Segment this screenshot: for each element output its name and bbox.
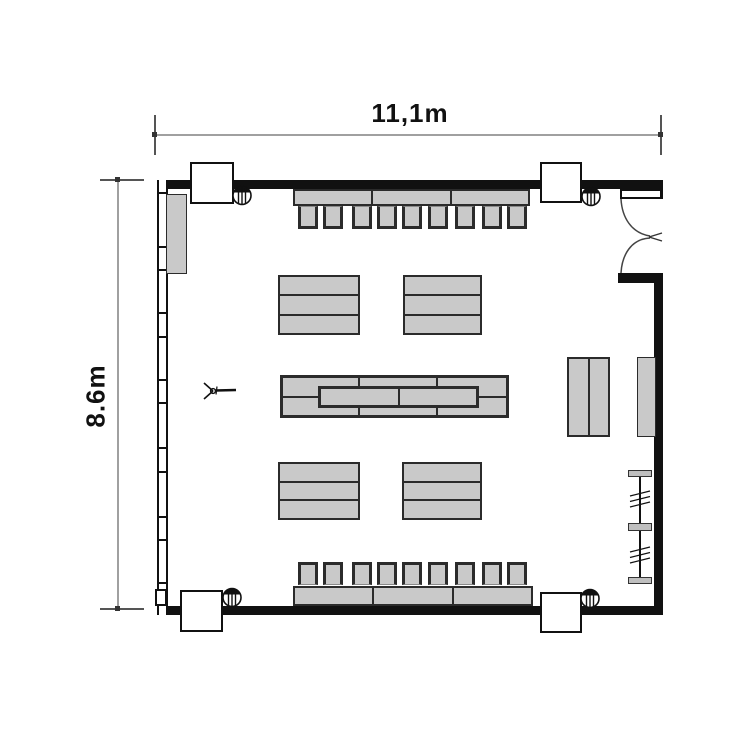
chair [402, 562, 422, 585]
window-mullion [159, 246, 166, 248]
chair [455, 562, 475, 585]
table [279, 500, 359, 519]
column-bottom-left [180, 590, 223, 632]
chair [402, 206, 422, 229]
table-group-upper-right [403, 275, 482, 335]
window-wall-end-cap [155, 589, 167, 606]
chair [352, 562, 372, 585]
dimension-dot-left-bottom [115, 606, 120, 611]
window-mullion [159, 192, 166, 194]
window-mullion [159, 516, 166, 518]
wall-right-below-door [654, 273, 663, 615]
cabinet-right-wall [637, 357, 656, 437]
table [589, 358, 610, 436]
chair [298, 562, 318, 585]
table-group-lower-left [278, 462, 360, 520]
dimension-tick-left-top [100, 179, 144, 181]
table [453, 587, 532, 605]
chair [507, 206, 527, 229]
table-group-lower-right [402, 462, 482, 520]
window-mullion [159, 312, 166, 314]
coat-rack-bar [628, 470, 652, 477]
table [294, 587, 373, 605]
chair [507, 562, 527, 585]
chair [428, 562, 448, 585]
coat-rack-bar [628, 577, 652, 584]
window-mullion [159, 539, 166, 541]
table [403, 500, 481, 519]
wall-table-row-bottom [293, 586, 533, 606]
dimension-dot-left-top [115, 177, 120, 182]
speaker-icon [221, 586, 243, 608]
hanger-marks-icon [627, 546, 653, 566]
chair [482, 206, 502, 229]
column-bottom-right [540, 592, 582, 633]
table [404, 295, 481, 314]
table [320, 388, 399, 406]
table [279, 482, 359, 501]
dimension-dot-top-right [658, 132, 663, 137]
speaker-icon [231, 184, 253, 206]
room-width-label: 11,1m [158, 98, 662, 129]
coat-rack [627, 468, 653, 588]
dimension-tick-left-bottom [100, 608, 144, 610]
room-height-label: 8.6m [81, 364, 112, 427]
chair [323, 562, 343, 585]
window-mullion [159, 471, 166, 473]
window-mullion [159, 269, 166, 271]
speaker-icon [579, 587, 601, 609]
table [373, 587, 452, 605]
window-mullion [159, 447, 166, 449]
coat-rack-bar [628, 523, 652, 531]
table [399, 388, 478, 406]
table [403, 463, 481, 482]
dimension-dot-top-left [152, 132, 157, 137]
table [279, 276, 359, 295]
table [403, 482, 481, 501]
window-mullion [159, 402, 166, 404]
dimension-line-top [155, 134, 662, 136]
chair [455, 206, 475, 229]
table [451, 190, 529, 205]
projector-icon [200, 378, 240, 404]
hanger-marks-icon [627, 490, 653, 510]
chair [323, 206, 343, 229]
table [568, 358, 589, 436]
column-top-right [540, 162, 582, 203]
table-stack-overlay-center [318, 386, 479, 408]
chair [428, 206, 448, 229]
chair [377, 206, 397, 229]
chair [352, 206, 372, 229]
double-door-swing-icon [616, 192, 664, 278]
chair [377, 562, 397, 585]
wall-table-row-top [293, 189, 530, 206]
table [372, 190, 450, 205]
cabinet-left [166, 194, 187, 274]
chair [482, 562, 502, 585]
table [404, 315, 481, 334]
table [279, 315, 359, 334]
table-group-upper-left [278, 275, 360, 335]
dimension-line-left [117, 180, 119, 610]
window-mullion [159, 336, 166, 338]
table [279, 295, 359, 314]
speaker-icon [580, 185, 602, 207]
table [294, 190, 372, 205]
window-mullion [159, 379, 166, 381]
window-mullion [159, 582, 166, 584]
column-top-left [190, 162, 234, 204]
floor-plan: 11,1m 8.6m [0, 0, 750, 750]
table [279, 463, 359, 482]
cabinet-right-double [567, 357, 610, 437]
chair [298, 206, 318, 229]
table [404, 276, 481, 295]
